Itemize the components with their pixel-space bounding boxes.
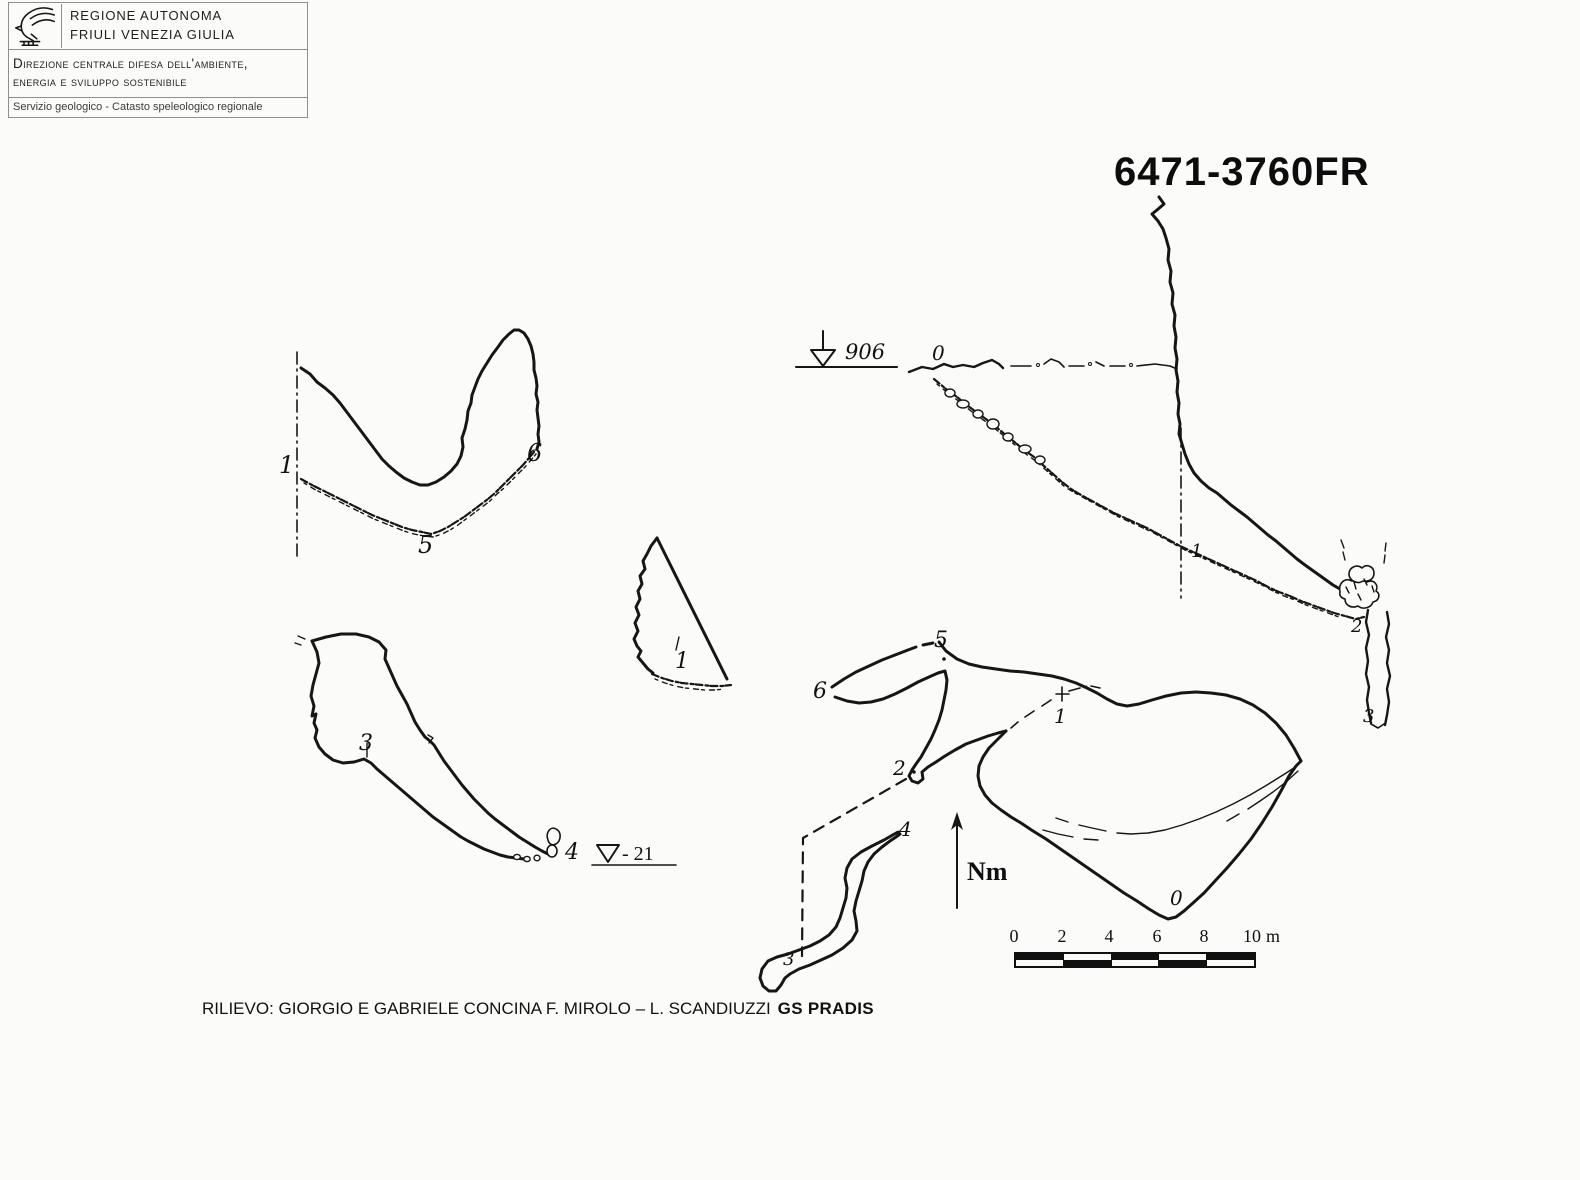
slope-boulder	[987, 419, 999, 429]
slope-boulder	[1003, 433, 1013, 441]
slope-boulder	[1019, 445, 1031, 453]
surface-line	[909, 360, 1003, 372]
station-label: 3	[783, 949, 794, 970]
west-entrance-ticks	[295, 636, 305, 645]
west-gallery-rubble	[514, 854, 521, 859]
scale-bar: 0 2 4 6 8 10 m	[1014, 926, 1252, 970]
scale-bar-graphic	[1014, 952, 1256, 968]
west-gallery-end-boulder	[547, 828, 560, 845]
plan-station1-cross	[1056, 687, 1069, 701]
survey-credit: RILIEVO: GIORGIO E GABRIELE CONCINA F. M…	[202, 999, 874, 1019]
scale-tick: 0	[1010, 926, 1019, 947]
profile-section: 906	[796, 197, 1390, 728]
credit-group: GS PRADIS	[778, 999, 874, 1018]
plan-north-gallery-and-chamber-top-wall	[832, 642, 1301, 761]
elevation-value: 906	[845, 340, 885, 364]
scale-tick: 10	[1243, 926, 1261, 947]
west-gallery-rubble	[524, 856, 530, 861]
surface-dot	[1089, 363, 1092, 366]
north-label: Nm	[967, 857, 1008, 886]
plan-station2-dot	[912, 770, 916, 774]
cross-section-a	[297, 330, 539, 558]
boulder-choke-upper	[1349, 566, 1374, 583]
scanned-cave-survey-page: REGIONE AUTONOMA FRIULI VENEZIA GIULIA D…	[0, 0, 1580, 1180]
station-label: 1	[279, 451, 294, 479]
slope-boulder	[1035, 456, 1045, 464]
station-label: 1	[675, 649, 689, 674]
section-b-left-wall	[634, 538, 657, 673]
surface-dot	[1037, 364, 1040, 367]
station-label: 3	[359, 731, 373, 756]
station-label: 4	[564, 840, 579, 865]
scale-segment	[1111, 954, 1159, 966]
section-a-debris-floor-texture	[304, 454, 536, 537]
scale-tick: 6	[1153, 926, 1162, 947]
credit-surveyors: RILIEVO: GIORGIO E GABRIELE CONCINA F. M…	[202, 999, 771, 1018]
station-labels: 1 5 6 1 3 4 0 1 2 3 5 6 1 2 4 0 3	[279, 341, 1374, 970]
slope-boulder	[945, 389, 955, 397]
boulder-choke-plumb-ticks	[1341, 540, 1386, 563]
west-gallery-south-wall	[311, 641, 524, 859]
station-label: 6	[813, 679, 827, 704]
station-label: 2	[892, 756, 906, 780]
station-label: 5	[934, 628, 948, 653]
plan-chamber-outline	[978, 731, 1301, 919]
section-a-ceiling-wall	[301, 330, 539, 485]
scale-unit: m	[1266, 926, 1280, 947]
station-label: 0	[1170, 886, 1183, 910]
west-gallery-end-blob	[547, 845, 557, 857]
west-gallery-rubble	[534, 855, 540, 861]
station-label: 1	[1191, 541, 1202, 562]
section-b-rubble-floor	[652, 674, 731, 686]
plan-dashed-connection-2-to-3	[802, 779, 906, 956]
plan-gallery-west	[295, 634, 560, 862]
elevation-triangle-icon	[811, 350, 835, 366]
station-label: 6	[527, 439, 542, 467]
station-label: 1	[1054, 704, 1067, 728]
section-b-rubble-texture	[655, 679, 724, 690]
depth-marker: - 21	[592, 843, 676, 865]
slope-boulder	[957, 400, 969, 408]
plan-traverse-dot	[1085, 686, 1088, 689]
north-arrow: Nm	[951, 812, 1008, 908]
scale-segment	[1206, 954, 1254, 966]
plan-station5-dot	[942, 657, 946, 661]
scale-tick: 2	[1058, 926, 1067, 947]
station-label: 3	[1363, 706, 1374, 727]
surface-dot	[1130, 364, 1133, 367]
station-label: 5	[418, 531, 433, 559]
west-gallery-north-wall	[312, 634, 548, 854]
profile-debris-texture	[937, 384, 1339, 617]
depth-value: - 21	[622, 843, 654, 865]
section-b-right-wall	[657, 538, 727, 679]
station-label: 0	[932, 341, 945, 365]
profile-shaft-right-wall	[1385, 612, 1390, 725]
plan-chamber-slope-line-3	[1043, 830, 1098, 840]
scale-segment	[1016, 954, 1063, 966]
surface-line-dashdot	[1011, 359, 1177, 369]
scale-segment	[1063, 954, 1111, 966]
plan-south-passage-outline	[760, 832, 900, 991]
scale-segment	[1158, 954, 1206, 966]
slope-boulder	[973, 410, 983, 418]
profile-debris-slope	[934, 379, 1364, 619]
elevation-marker: 906	[796, 331, 897, 367]
scale-tick: 8	[1200, 926, 1209, 947]
station-label: 4	[898, 817, 912, 841]
depth-triangle-icon	[597, 845, 619, 862]
station-label: 2	[1350, 616, 1362, 637]
scale-tick: 4	[1105, 926, 1114, 947]
